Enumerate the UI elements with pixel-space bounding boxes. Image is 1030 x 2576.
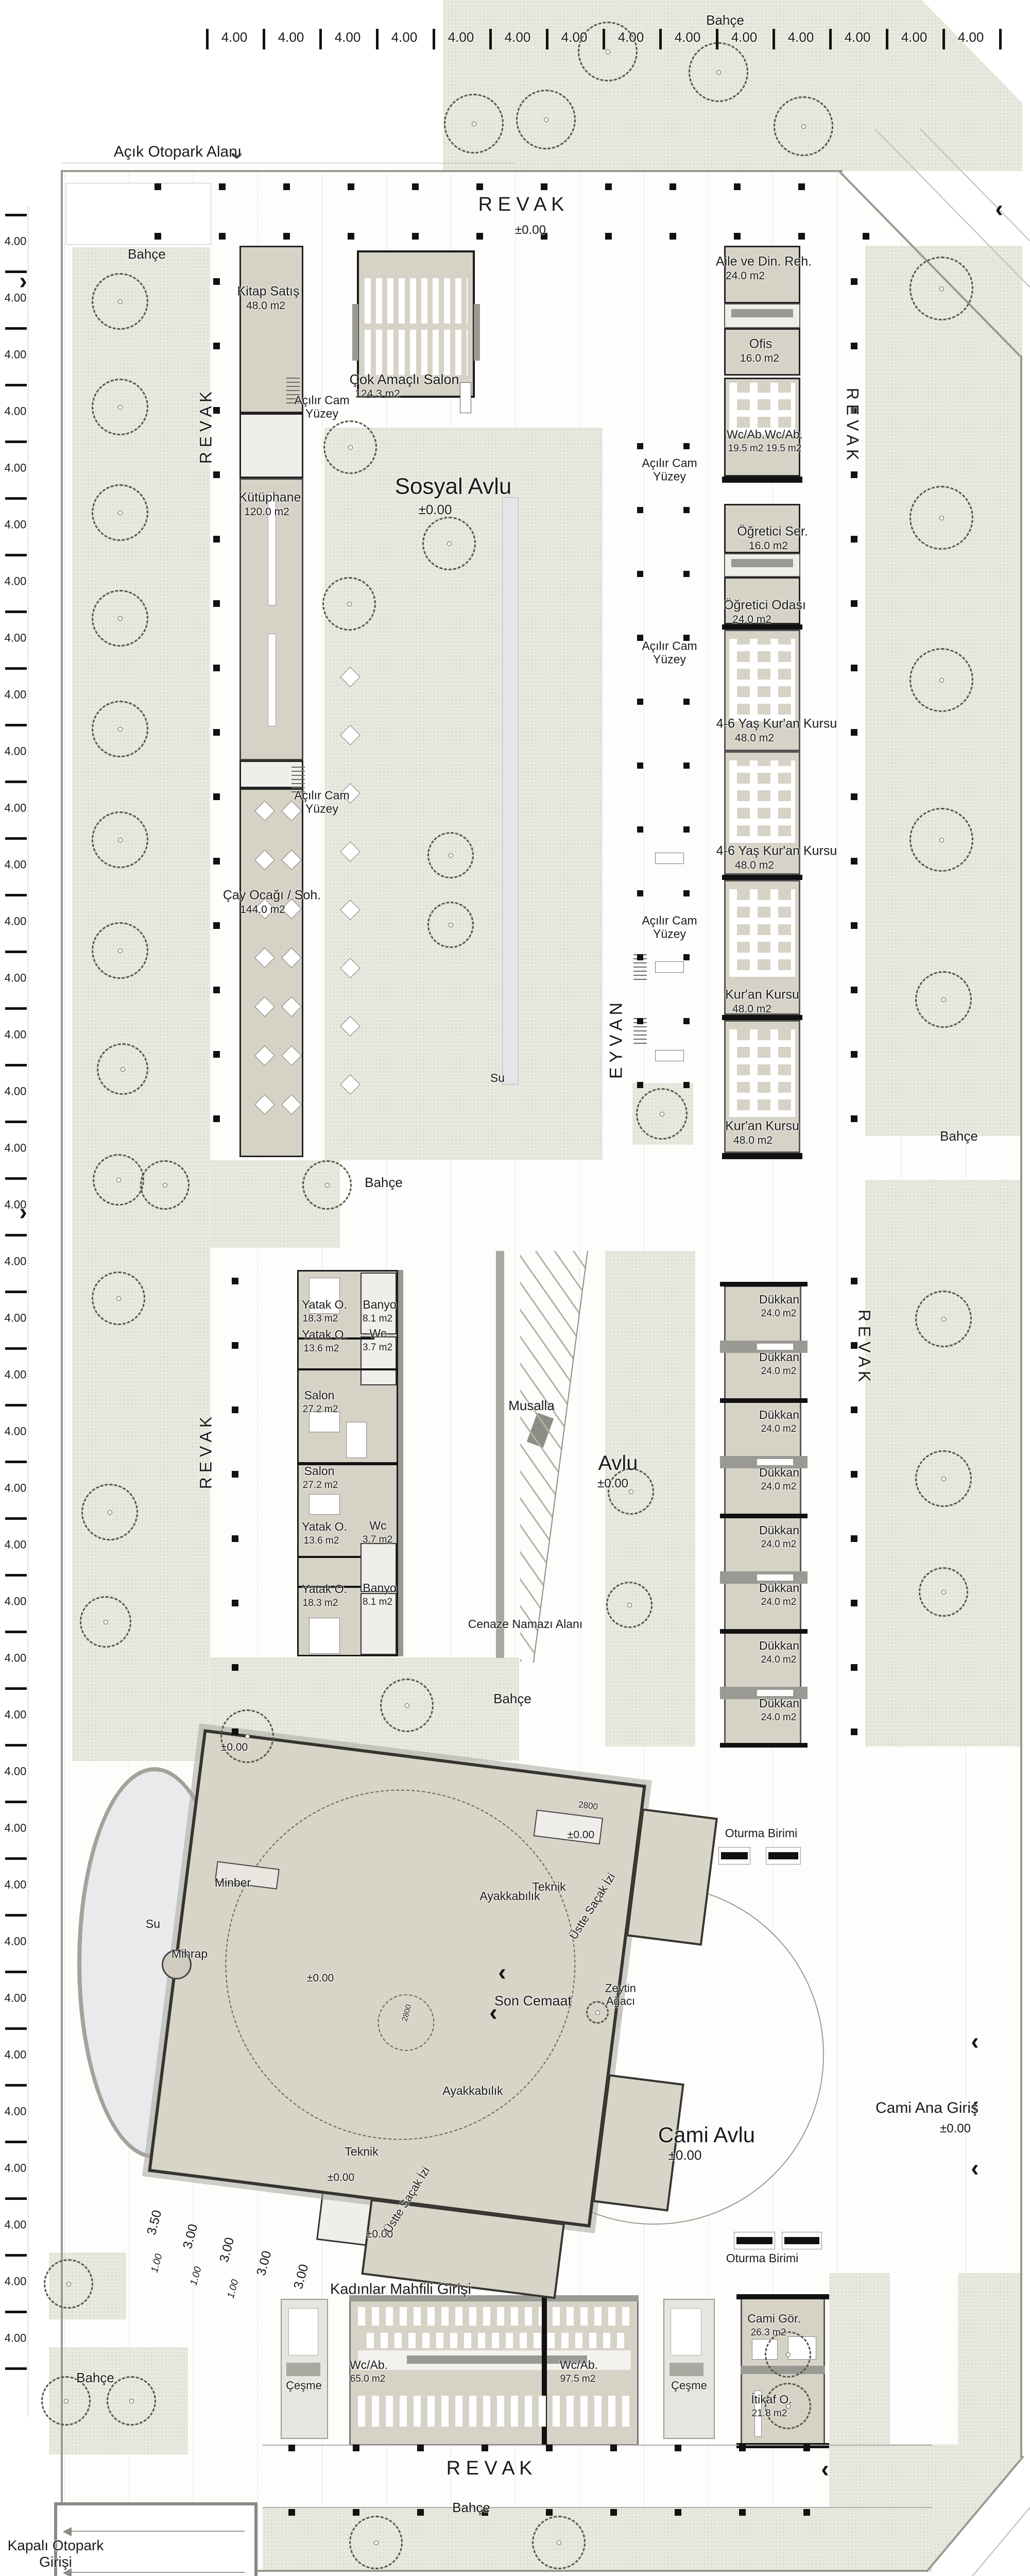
colonnade-left-s [232, 1342, 238, 1349]
colonnade-top-b [348, 233, 354, 240]
camigor-wall-top [736, 2294, 829, 2299]
left-dim-ticks [5, 894, 27, 896]
colonnade-left-n [213, 793, 220, 800]
kuran1-label: Kur'an Kursu [725, 988, 799, 1003]
yatak1-area: 18.3 m2 [303, 1313, 338, 1325]
salon-stairs [460, 382, 471, 413]
left-dims: 4.00 [5, 631, 27, 644]
left-dim-ticks [5, 440, 27, 443]
kurs2-area: 48.0 m2 [735, 859, 774, 872]
left-dim-ticks [5, 1347, 27, 1350]
ramp-arrow-line-1 [70, 2531, 245, 2532]
dukkan1-area: 24.0 m2 [761, 1308, 797, 1319]
left-dims: 4.00 [5, 1028, 27, 1041]
colonnade-right-n [851, 471, 857, 478]
tree [909, 648, 973, 712]
tree [915, 1450, 972, 1507]
tree [689, 42, 748, 102]
left-dims: 4.00 [5, 744, 27, 757]
cami-giris-walkway [890, 1748, 958, 2444]
lodging-sofa-2 [309, 1494, 340, 1515]
cami-ana-giris-label: Cami Ana Giriş [875, 2099, 978, 2117]
acik-otopark-top-label: Açık Otopark Alanı [114, 143, 242, 161]
tree [322, 577, 376, 631]
level-a: ±0.00 [221, 1741, 248, 1754]
colonnade-eyvan-a [637, 826, 643, 833]
tree [516, 90, 576, 149]
colonnade-eyvan-a [637, 443, 643, 449]
kuran2-area: 48.0 m2 [733, 1134, 772, 1147]
left-dim-ticks [5, 2027, 27, 2030]
colonnade-eyvan-a [637, 571, 643, 577]
sosyal-avlu-level: ±0.00 [419, 502, 452, 518]
colonnade-left-s [232, 1278, 238, 1284]
tree [80, 1596, 131, 1648]
left-dims: 4.00 [5, 1991, 27, 2004]
colonnade-eyvan-a [637, 1018, 643, 1024]
kurs1-desks [729, 639, 795, 721]
top-dims: 4.00 [448, 30, 474, 45]
cesme1-label: Çeşme [286, 2379, 322, 2392]
top-dim-ticks [319, 29, 322, 49]
tree [909, 257, 973, 320]
top-dim-ticks [263, 29, 265, 49]
left-dims: 4.00 [5, 348, 27, 361]
colonnade-eyvan-b [683, 1082, 690, 1088]
yatak3-label: Yatak O. [302, 1520, 347, 1533]
banyo1-area: 8.1 m2 [363, 1313, 392, 1325]
tree [774, 96, 833, 156]
colonnade-left-n [213, 987, 220, 993]
colonnade-eyvan-b [683, 890, 690, 896]
left-dims: 4.00 [5, 971, 27, 984]
cesme2-basin [671, 2308, 701, 2355]
lodging-gray-edge [398, 1270, 403, 1656]
colonnade-eyvan-b [683, 826, 690, 833]
wcab1-area: 19.5 m2 [728, 443, 764, 454]
ayakkabilik1-label: Ayakkabılık [479, 1889, 540, 1903]
colonnade-left-s [232, 1471, 238, 1478]
tree [220, 1709, 274, 1763]
oturma-bench-2 [766, 1847, 801, 1865]
rw-wall-4 [722, 1015, 802, 1020]
cesme2-label: Çeşme [671, 2379, 707, 2392]
colonnade-top-a [348, 183, 354, 190]
left-dim-ticks [5, 1914, 27, 1917]
left-dims: 4.00 [5, 404, 27, 417]
left-dims: 4.00 [5, 2105, 27, 2117]
bahce-top-label: Bahçe [706, 13, 744, 28]
dukkan4-label: Dükkan [759, 1466, 799, 1479]
colonnade-eyvan-a [637, 1082, 643, 1088]
colonnade-top-b [154, 233, 161, 240]
left-dims: 4.00 [5, 1311, 27, 1324]
dukkan7-label: Dükkan [759, 1639, 799, 1652]
colonnade-top-a [541, 183, 547, 190]
left-dim-ticks [5, 1574, 27, 1577]
salon-side-wall-l [352, 304, 358, 361]
left-dim-ticks [5, 611, 27, 613]
left-dim-ticks [5, 1121, 27, 1123]
oturma1-label: Oturma Birimi [725, 1826, 798, 1840]
su-channel-label: Su [490, 1071, 505, 1084]
teknik2-label: Teknik [345, 2145, 378, 2158]
left-dim-dashline [28, 206, 28, 2416]
banyo1-label: Banyo [363, 1298, 396, 1311]
left-dim-ticks [5, 837, 27, 840]
tree [140, 1160, 190, 1210]
tree [81, 1484, 138, 1540]
tree [444, 94, 504, 154]
left-dims: 4.00 [5, 518, 27, 531]
colonnade-eyvan-b [683, 507, 690, 513]
left-dim-ticks [5, 1744, 27, 1747]
dukkan2-label: Dükkan [759, 1350, 799, 1364]
dukkan6-label: Dükkan [759, 1581, 799, 1595]
top-dims: 4.00 [675, 30, 701, 45]
top-dims: 4.00 [561, 30, 588, 45]
wcab2-label: Wc/Ab. [765, 428, 803, 441]
acilir-cam-1: Açılır Cam Yüzey [294, 394, 349, 421]
top-dim-ticks [886, 29, 888, 49]
colonnade-bottom-b [610, 2509, 617, 2516]
tree [919, 1567, 968, 1617]
yatak3-area: 13.6 m2 [304, 1535, 339, 1547]
salon-seats-2 [365, 330, 468, 375]
left-dim-ticks [5, 1461, 27, 1463]
site-edge-right [1020, 355, 1022, 2458]
kuran2-desks [729, 1029, 795, 1117]
top-dim-ticks [999, 29, 1002, 49]
colonnade-top-a [798, 183, 805, 190]
left-dims: 4.00 [5, 1141, 27, 1154]
colonnade-left-n [213, 600, 220, 607]
left-dim-ticks [5, 667, 27, 670]
dukkan3-area: 24.0 m2 [761, 1423, 797, 1435]
dukkan4-area: 24.0 m2 [761, 1481, 797, 1493]
dukkan2-area: 24.0 m2 [761, 1366, 797, 1377]
colonnade-left-n [213, 665, 220, 671]
colonnade-bottom-b [417, 2509, 424, 2516]
tree [909, 808, 973, 872]
banyo2-label: Banyo [363, 1581, 396, 1595]
colonnade-top-a [605, 183, 612, 190]
wcab-stall-row-3 [358, 2396, 631, 2427]
left-dim-ticks [5, 1064, 27, 1066]
left-dim-ticks [5, 724, 27, 726]
left-dim-ticks [5, 2254, 27, 2257]
left-dim-ticks [5, 2141, 27, 2143]
dukkan8-area: 24.0 m2 [761, 1712, 797, 1723]
colonnade-left-n [213, 1115, 220, 1122]
left-dims: 4.00 [5, 1595, 27, 1607]
tree [608, 1468, 654, 1515]
left-dim-ticks [5, 2367, 27, 2370]
left-dim-ticks [5, 951, 27, 953]
colonnade-right-n [851, 922, 857, 929]
top-dims: 4.00 [958, 30, 984, 45]
colonnade-left-n [213, 536, 220, 543]
colonnade-eyvan-b [683, 699, 690, 705]
green-left-s [72, 1160, 210, 1761]
bahce-bottomleft-label: Bahçe [76, 2370, 114, 2386]
colonnade-right-n [851, 536, 857, 543]
left-dim-ticks [5, 1404, 27, 1406]
parking-lot-line [62, 163, 515, 163]
colonnade-left-n [213, 343, 220, 349]
son-cemaat-arrow-1: ‹ [498, 1959, 506, 1986]
wcab65-area: 65.0 m2 [350, 2374, 386, 2385]
colonnade-bottom-a [546, 2445, 553, 2451]
level-c: ±0.00 [568, 1829, 594, 1841]
tree [422, 517, 476, 570]
colonnade-eyvan-b [683, 571, 690, 577]
wing-hall-1 [239, 413, 303, 478]
rw-wall-1 [722, 477, 802, 483]
dukkan-wall-top [720, 1282, 808, 1286]
colonnade-right-n [851, 1051, 857, 1058]
colonnade-bottom-b [353, 2509, 359, 2516]
dukkan3-label: Dükkan [759, 1408, 799, 1421]
colonnade-top-b [476, 233, 483, 240]
colonnade-top-b [605, 233, 612, 240]
wcab65-label: Wc/Ab. [350, 2358, 388, 2371]
cami-giris-arrow-1: ‹ [971, 2028, 978, 2055]
yatak4-label: Yatak O. [302, 1582, 347, 1596]
dukkan8-label: Dükkan [759, 1697, 799, 1710]
left-dim-ticks [5, 1631, 27, 1633]
eyvan-label: E Y V A N [606, 1003, 626, 1079]
revak-left-s-label: R E V A K [197, 1417, 216, 1489]
colonnade-top-a [734, 183, 741, 190]
ogretici-odasi-label: Öğretici Odası [724, 598, 806, 613]
colonnade-eyvan-a [637, 699, 643, 705]
level-d: ±0.00 [328, 2172, 354, 2184]
aile-label: Aile ve Din. Reh. [716, 255, 812, 269]
wcab1-label: Wc/Ab. [727, 428, 765, 441]
tree [427, 902, 474, 948]
left-dim-ticks [5, 384, 27, 386]
lodging-bed-2 [309, 1618, 340, 1654]
rw-stair-1-bar [731, 309, 793, 317]
colonnade-eyvan-a [637, 890, 643, 896]
colonnade-top-a [283, 183, 290, 190]
tree [915, 1291, 972, 1347]
kuran1-desks [729, 889, 795, 977]
tree [380, 1679, 434, 1732]
east-annex-1 [626, 1808, 718, 1946]
left-dims: 4.00 [5, 1821, 27, 1834]
left-dim-ticks [5, 327, 27, 330]
dukkan-gray-3-notch [757, 1574, 793, 1581]
colonnade-right-n [851, 729, 857, 736]
top-dims: 4.00 [618, 30, 644, 45]
yatak4-area: 18.3 m2 [303, 1598, 338, 1609]
wc1-label: Wc [369, 1327, 386, 1340]
left-dims: 4.00 [5, 801, 27, 814]
yatak2-area: 13.6 m2 [304, 1343, 339, 1354]
left-dims: 4.00 [5, 688, 27, 701]
cay-ocagi-label: Çay Ocağı / Soh. [223, 888, 321, 903]
salon2-label: Salon [304, 1464, 335, 1478]
yatak2-label: Yatak O. [302, 1328, 347, 1341]
ogretici-odasi-area: 24.0 m2 [732, 614, 771, 626]
left-dims: 4.00 [5, 1538, 27, 1551]
top-dim-ticks [546, 29, 548, 49]
colonnade-left-n [213, 1051, 220, 1058]
salon-seats-1 [365, 278, 468, 324]
ramp-arrow-line-2 [70, 2572, 245, 2573]
cami-giris-arrow-3: ‹ [971, 2155, 978, 2182]
parking-stripes [66, 183, 211, 245]
wcab-stall-row-1 [358, 2307, 631, 2326]
kurs1-label: 4-6 Yaş Kur'an Kursu [716, 717, 837, 732]
tree [92, 1272, 145, 1325]
tree [97, 1043, 148, 1095]
left-dims: 4.00 [5, 1425, 27, 1437]
colonnade-right-s [851, 1600, 857, 1606]
left-dim-ticks [5, 2311, 27, 2313]
bahce-bottom-label: Bahçe [452, 2500, 490, 2516]
left-dims: 4.00 [5, 2048, 27, 2061]
salon-side-wall-r [474, 304, 480, 361]
left-dim-ticks [5, 1857, 27, 1860]
revak-right-n-label: R E V A K [843, 388, 862, 461]
tree [532, 2516, 586, 2569]
top-dims: 4.00 [731, 30, 758, 45]
dukkan5-area: 24.0 m2 [761, 1539, 797, 1550]
revak-bottom-line-2 [263, 2507, 932, 2508]
colonnade-top-b [283, 233, 290, 240]
left-dim-ticks [5, 214, 27, 216]
bahce-mid-label: Bahçe [365, 1175, 403, 1191]
top-dim-ticks [942, 29, 945, 49]
cami-ana-giris-level: ±0.00 [940, 2122, 971, 2136]
colonnade-right-n [851, 343, 857, 349]
camigor-area: 26.3 m2 [751, 2327, 786, 2338]
revak-right-s-label: R E V A K [855, 1310, 874, 1382]
colonnade-eyvan-b [683, 443, 690, 449]
colonnade-bottom-a [288, 2445, 295, 2451]
left-dim-ticks [5, 781, 27, 783]
colonnade-top-b [734, 233, 741, 240]
acilir-cam-2: Açılır Cam Yüzey [642, 456, 697, 484]
kutuphane-label: Kütüphane [239, 490, 301, 505]
site-edge-top [62, 170, 843, 172]
top-dims: 4.00 [901, 30, 928, 45]
colonnade-bottom-b [739, 2509, 746, 2516]
floor-plan: Zemin Kat Planı Kat Alanı:2000 m² 1/200 … [0, 0, 1030, 2576]
colonnade-top-b [219, 233, 226, 240]
colonnade-left-s [232, 1535, 238, 1542]
left-dims: 4.00 [5, 1481, 27, 1494]
tree [909, 486, 973, 550]
dukkan-black-2 [720, 1514, 808, 1518]
tree [427, 832, 474, 878]
minber-label: Minber [215, 1876, 251, 1889]
site-edge-left [61, 170, 63, 2572]
avlu-label: Avlu [598, 1451, 638, 1475]
site-arrow-right-top: ‹ [995, 195, 1003, 223]
ofis-area: 16.0 m2 [740, 352, 779, 365]
green-left-n [72, 247, 210, 1160]
colonnade-right-n [851, 793, 857, 800]
colonnade-right-s [851, 1471, 857, 1478]
revak-top-level: ±0.00 [515, 223, 546, 238]
kurs2-desks [729, 760, 795, 843]
left-dim-ticks [5, 2084, 27, 2087]
colonnade-left-s [232, 1664, 238, 1671]
left-dim-ticks [5, 1007, 27, 1010]
dukkan-gray-2-notch [757, 1459, 793, 1465]
top-dims: 4.00 [788, 30, 814, 45]
oturma2-label: Oturma Birimi [726, 2251, 799, 2265]
musalla-wall [496, 1251, 504, 1658]
colonnade-eyvan-b [683, 1018, 690, 1024]
colonnade-right-s [851, 1278, 857, 1284]
cok-amacli-area: 124.3 m2 [355, 388, 400, 400]
top-dims: 4.00 [391, 30, 418, 45]
left-dim-ticks [5, 1801, 27, 1803]
ayakkabilik2-label: Ayakkabılık [442, 2084, 503, 2097]
itikaf-label: İtikaf O. [751, 2393, 792, 2406]
left-dims: 4.00 [5, 1935, 27, 1947]
mihrap-label: Mihrap [171, 1947, 208, 1960]
colonnade-bottom-b [675, 2509, 681, 2516]
colonnade-eyvan-b [683, 954, 690, 960]
colonnade-top-a [669, 183, 676, 190]
revak-arrow-bottom: ‹ [821, 2455, 829, 2483]
ofis-label: Ofis [749, 337, 772, 352]
left-dims: 4.00 [5, 234, 27, 247]
kadinlar-label: Kadınlar Mahfili Girişi [330, 2281, 471, 2298]
kurs2-label: 4-6 Yaş Kur'an Kursu [716, 844, 837, 859]
left-dims: 4.00 [5, 1084, 27, 1097]
left-dims: 4.00 [5, 858, 27, 871]
eyvan-table-1 [655, 853, 684, 864]
salon2-area: 27.2 m2 [303, 1480, 338, 1491]
water-channel [502, 497, 519, 1084]
colonnade-bottom-b [288, 2509, 295, 2516]
revak-bottom-line-1 [263, 2445, 932, 2446]
colonnade-top-a [476, 183, 483, 190]
wc1-area: 3.7 m2 [363, 1342, 392, 1353]
colonnade-left-n [213, 729, 220, 736]
colonnade-right-s [851, 1406, 857, 1413]
page: { "title_block": { "title": "Zemin Kat P… [0, 0, 1030, 2576]
left-dims: 4.00 [5, 2275, 27, 2287]
left-dim-ticks [5, 497, 27, 500]
tree [92, 484, 148, 541]
bahce-right-mid-label: Bahçe [940, 1129, 978, 1144]
colonnade-top-a [219, 183, 226, 190]
top-dim-ticks [829, 29, 832, 49]
colonnade-top-b [412, 233, 419, 240]
mosque-hall [148, 1729, 646, 2228]
oturma-bench-4 [782, 2232, 822, 2249]
left-dims: 4.00 [5, 2161, 27, 2174]
dukkan-gray-1-notch [757, 1344, 793, 1350]
tree [349, 2516, 403, 2569]
tree [92, 701, 148, 757]
top-dims: 4.00 [335, 30, 361, 45]
salon1-area: 27.2 m2 [303, 1404, 338, 1415]
kurs1-area: 48.0 m2 [735, 732, 774, 744]
dukkan-wall-bottom [720, 1743, 808, 1748]
tree [323, 420, 377, 474]
colonnade-top-b [863, 233, 869, 240]
colonnade-top-a [154, 183, 161, 190]
